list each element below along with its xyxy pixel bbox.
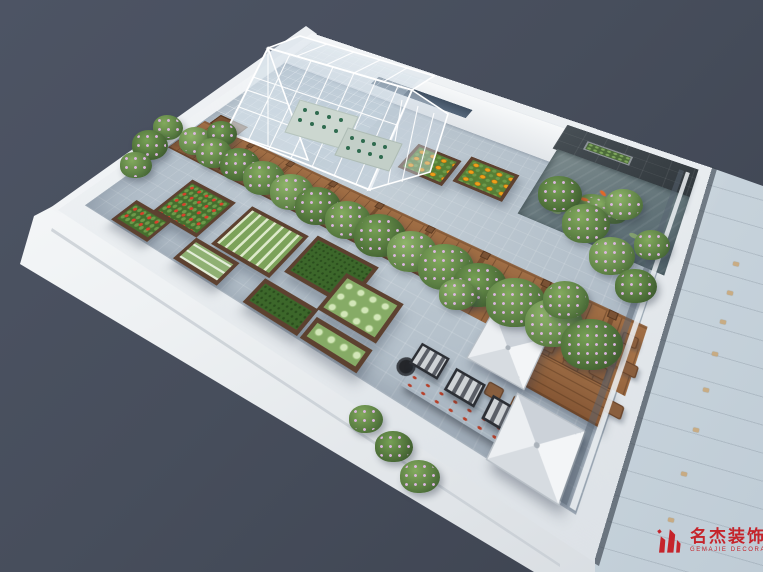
- facade-speckle: [693, 427, 700, 432]
- brand-name-cn: 名杰装饰®: [690, 528, 763, 545]
- facade-speckle: [712, 351, 719, 356]
- facade-speckle: [703, 387, 710, 392]
- rooftop-garden-render: 名杰装饰® GEMAJIE DECORATION: [0, 0, 763, 572]
- facade-speckle: [733, 261, 740, 266]
- watermark-logo: 名杰装饰® GEMAJIE DECORATION: [650, 522, 763, 558]
- facade-speckle: [727, 290, 734, 295]
- facade-speckle: [681, 471, 688, 476]
- building-logo-icon: [650, 522, 686, 558]
- brand-tagline-en: GEMAJIE DECORATION: [690, 547, 763, 553]
- facade-speckle: [720, 319, 727, 324]
